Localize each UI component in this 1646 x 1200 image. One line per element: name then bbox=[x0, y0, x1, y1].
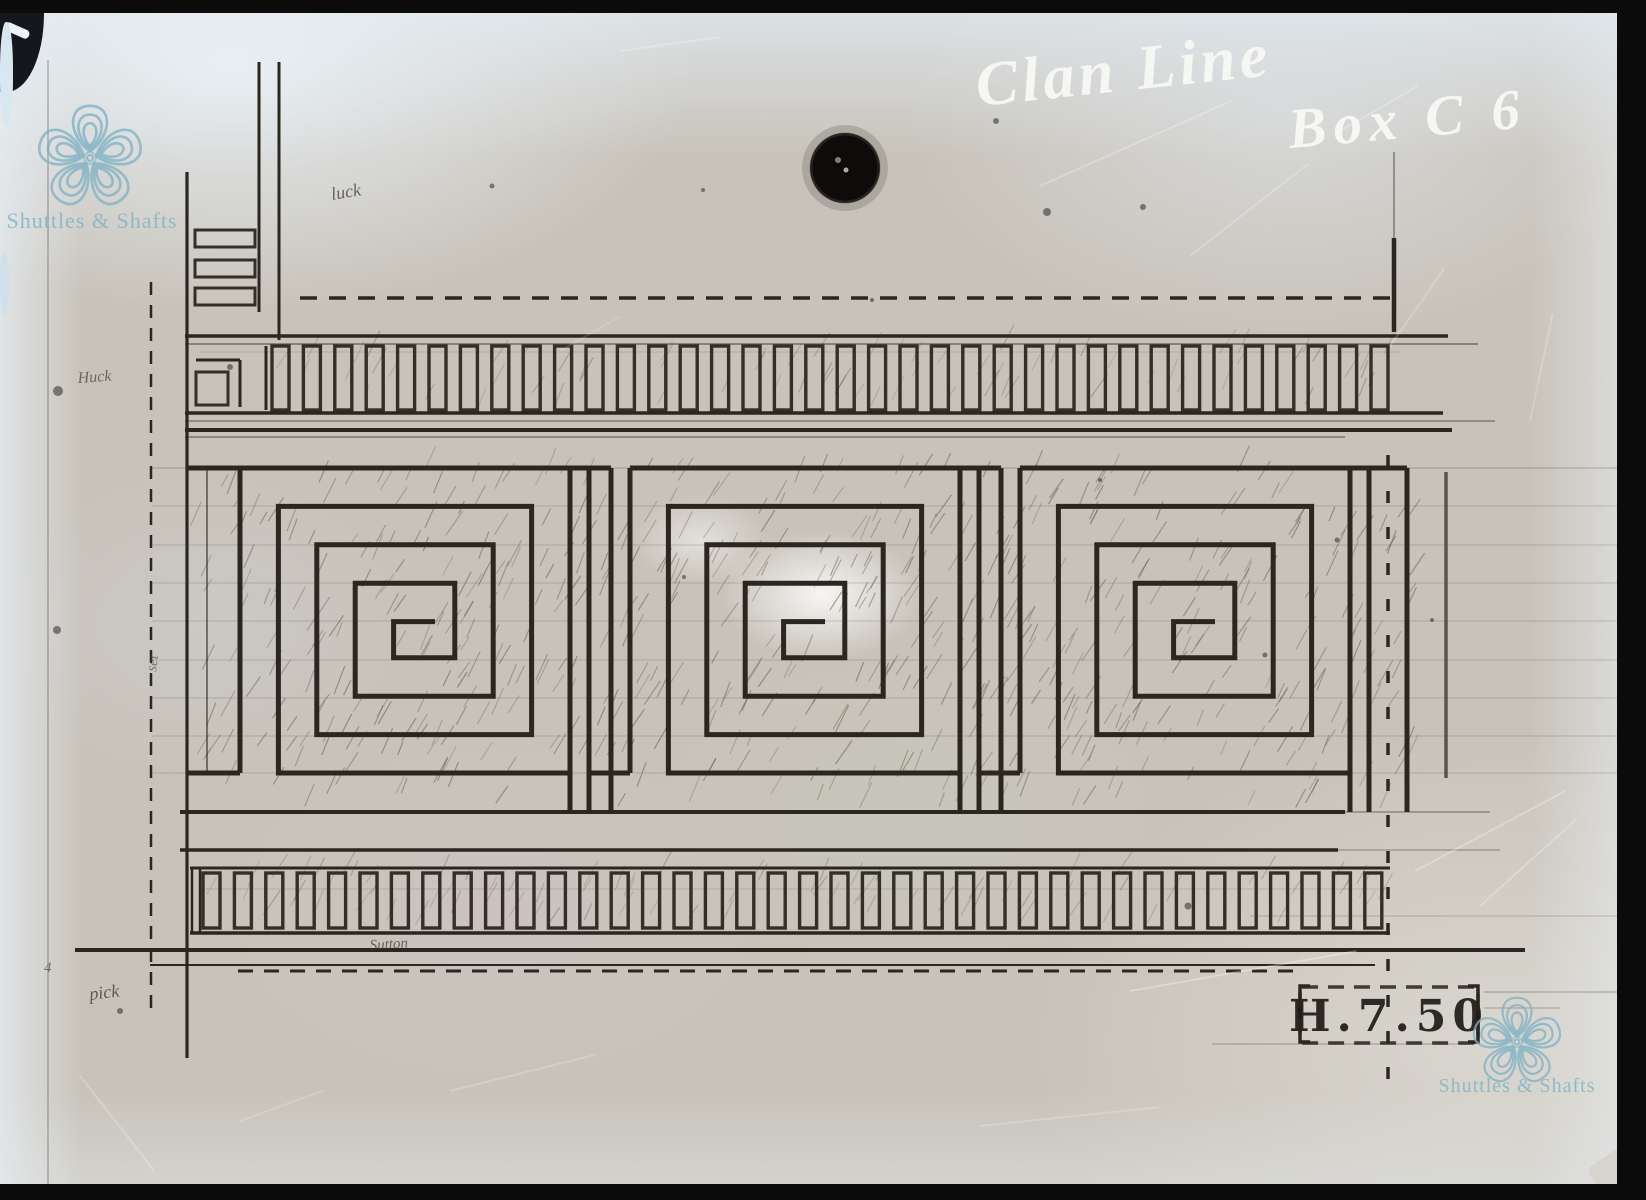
edge-glare-blob bbox=[0, 252, 9, 314]
pencil-note-bottom-left: pick bbox=[86, 980, 121, 1004]
frame-bottom bbox=[0, 1184, 1646, 1200]
watermark-top-left: Shuttles & Shafts bbox=[6, 106, 177, 233]
stamp-text: H.7.50 bbox=[1289, 991, 1489, 1042]
celtic-knot-icon bbox=[35, 106, 145, 210]
pencil-note-signature: Sutton bbox=[369, 935, 408, 954]
pencil-note-left: Huck bbox=[76, 368, 113, 387]
watermark-text: Shuttles & Shafts bbox=[6, 208, 177, 233]
stamp-box: H.7.50 bbox=[1289, 987, 1489, 1043]
watermark-text: Shuttles & Shafts bbox=[1438, 1075, 1595, 1097]
frame-right bbox=[1617, 0, 1646, 1200]
pencil-note-corner: 4 bbox=[44, 960, 52, 976]
frame-top bbox=[0, 0, 1646, 13]
ink-linework bbox=[75, 62, 1525, 1090]
pin-hole bbox=[802, 125, 888, 211]
design-drawing: H.7.50 Clan Line Box C 6 luck Huck set S… bbox=[0, 0, 1646, 1200]
handwriting-clan-line: Clan Line bbox=[972, 19, 1275, 120]
pencil-note-top: luck bbox=[329, 179, 363, 204]
edge-glare-blob bbox=[0, 22, 13, 126]
pencil-note-left-vertical: set bbox=[144, 653, 162, 672]
photograph: H.7.50 Clan Line Box C 6 luck Huck set S… bbox=[0, 0, 1646, 1200]
